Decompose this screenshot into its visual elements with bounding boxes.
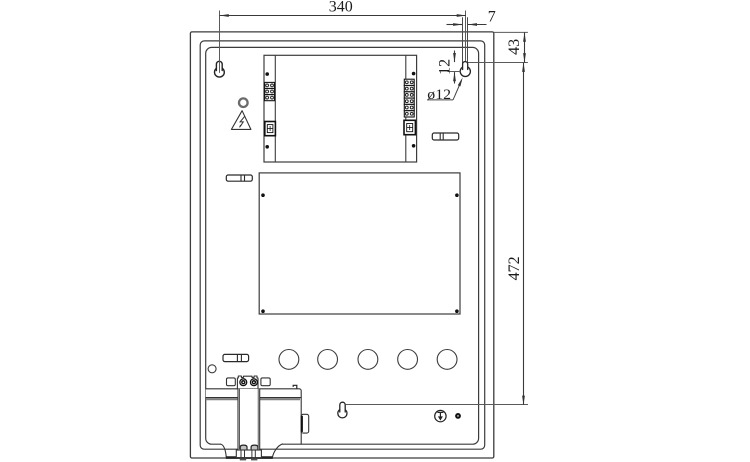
svg-text:12: 12 <box>436 59 453 75</box>
svg-text:472: 472 <box>506 256 523 280</box>
svg-text:7: 7 <box>488 8 496 25</box>
svg-text:340: 340 <box>329 0 353 16</box>
svg-text:43: 43 <box>506 39 523 55</box>
